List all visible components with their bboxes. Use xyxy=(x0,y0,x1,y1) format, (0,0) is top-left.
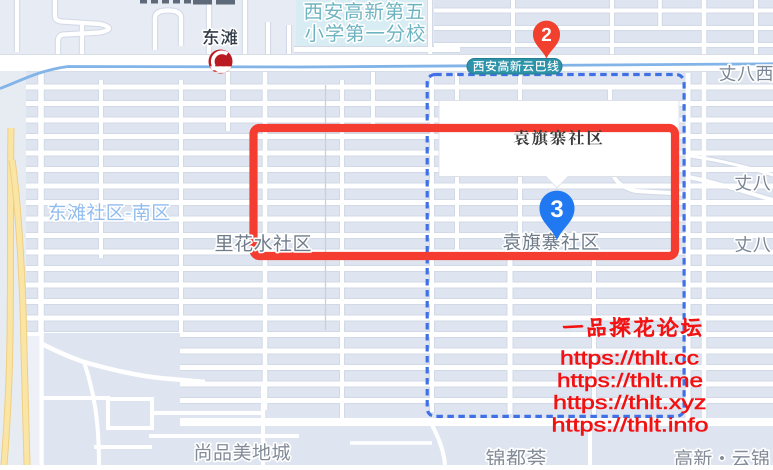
svg-text:https://thlt.info: https://thlt.info xyxy=(552,414,709,436)
svg-text:https://thlt.cc: https://thlt.cc xyxy=(560,348,699,370)
svg-text:https://thlt.me: https://thlt.me xyxy=(557,370,703,392)
svg-text:https://thlt.xyz: https://thlt.xyz xyxy=(553,392,707,414)
